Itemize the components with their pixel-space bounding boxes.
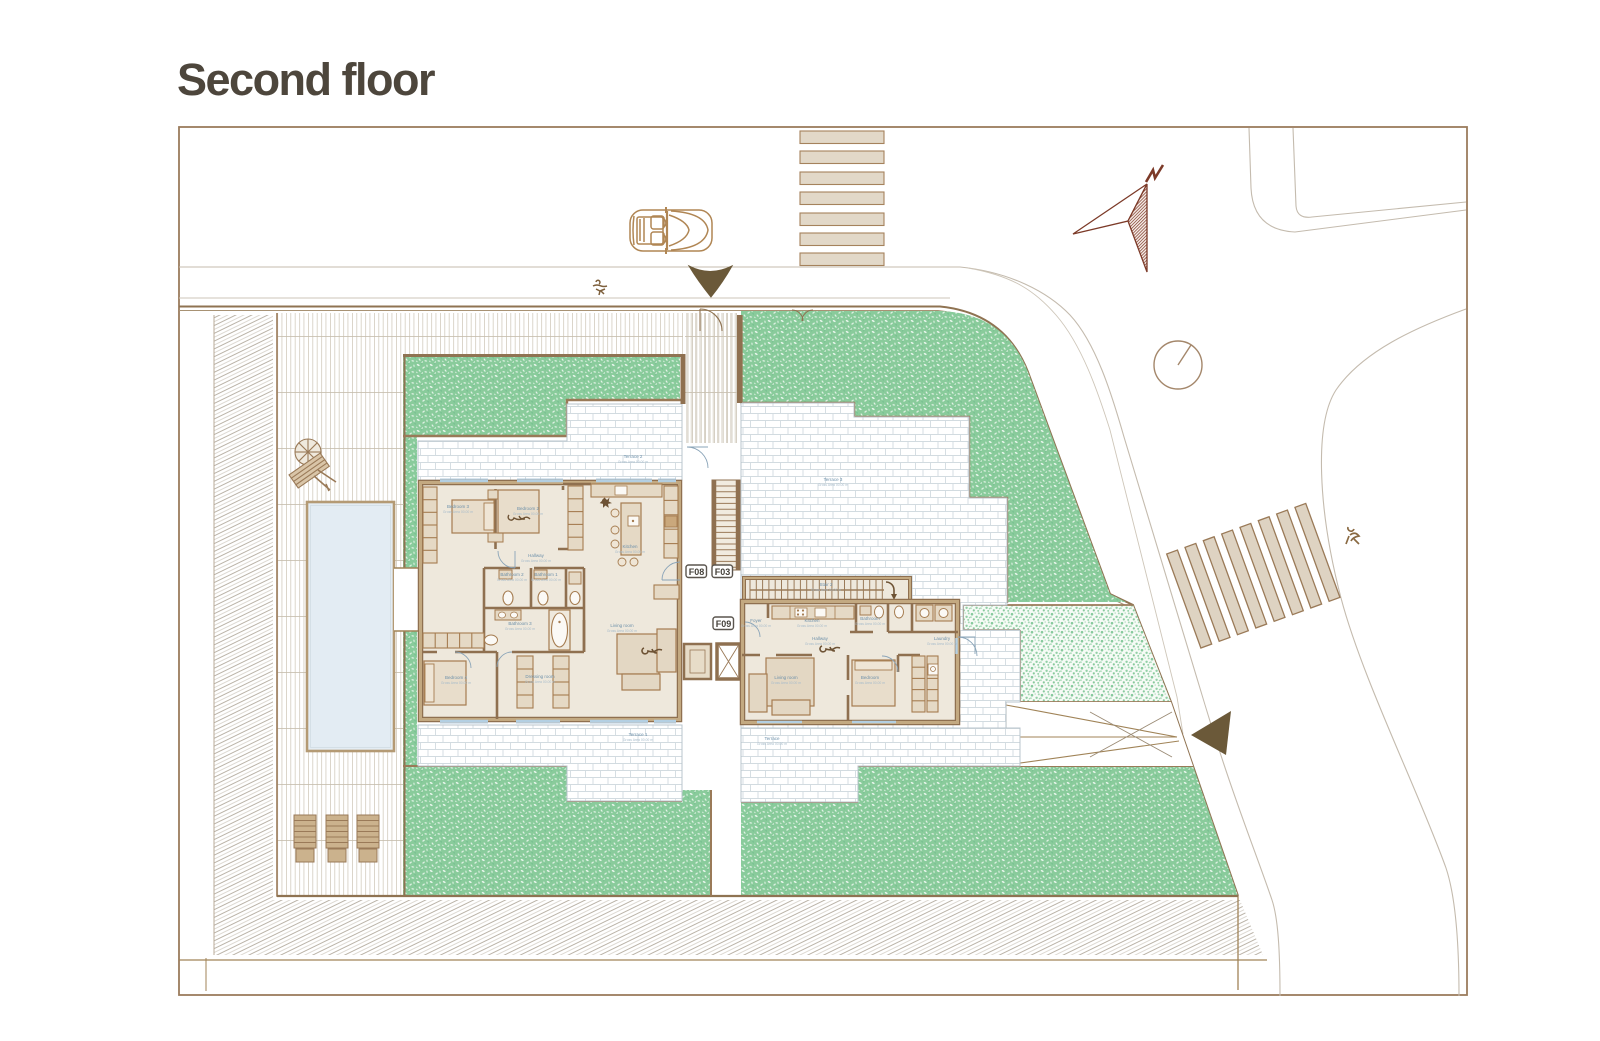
svg-text:Gross Area 00.00 m: Gross Area 00.00 m [811,588,841,592]
svg-text:Bedroom 2: Bedroom 2 [517,506,540,511]
svg-text:Gross Area 00.00 m: Gross Area 00.00 m [855,681,885,685]
svg-text:Laundry: Laundry [934,636,951,641]
svg-text:Gross Area 00.00 m: Gross Area 00.00 m [741,624,771,628]
svg-text:Gross Area 00.00 m: Gross Area 00.00 m [531,578,561,582]
svg-text:Terrace 1: Terrace 1 [629,732,648,737]
svg-text:Gross Area 00.00 m: Gross Area 00.00 m [615,550,645,554]
svg-text:Bedroom 3: Bedroom 3 [447,504,470,509]
svg-text:Living room: Living room [774,675,798,680]
svg-text:Bedroom: Bedroom [861,675,880,680]
svg-text:Bathroom 3: Bathroom 3 [508,621,532,626]
svg-text:Gross Area 00.00 m: Gross Area 00.00 m [818,483,848,487]
svg-text:Gross Area 00.00 m: Gross Area 00.00 m [513,512,543,516]
svg-text:Terrace 2: Terrace 2 [624,454,643,459]
svg-text:Gross Area 00.00 m: Gross Area 00.00 m [927,642,957,646]
svg-text:Dressing room: Dressing room [525,674,555,679]
svg-text:F03: F03 [715,567,731,577]
svg-text:Terrace: Terrace [764,736,780,741]
svg-text:Gross Area 00.00 m: Gross Area 00.00 m [505,627,535,631]
svg-text:Hallway: Hallway [528,553,545,558]
svg-text:Stair 2: Stair 2 [819,582,833,587]
svg-text:Terrace 3: Terrace 3 [824,477,843,482]
svg-text:Gross Area 00.00 m: Gross Area 00.00 m [497,578,527,582]
svg-text:Gross Area 00.00 m: Gross Area 00.00 m [757,742,787,746]
svg-text:Bathroom 2: Bathroom 2 [500,572,524,577]
svg-text:Gross Area 00.00 m: Gross Area 00.00 m [443,510,473,514]
svg-text:Gross Area 00.00 m: Gross Area 00.00 m [618,460,648,464]
svg-text:Bathroom: Bathroom [860,616,880,621]
svg-text:Gross Area 00.00 m: Gross Area 00.00 m [521,559,551,563]
svg-text:Gross Area 00.00 m: Gross Area 00.00 m [805,642,835,646]
svg-text:Gross Area 00.00 m: Gross Area 00.00 m [771,681,801,685]
svg-text:Gross Area 00.00 m: Gross Area 00.00 m [525,680,555,684]
svg-text:Foyer: Foyer [750,618,762,623]
svg-text:F09: F09 [716,619,732,629]
svg-text:Hallway: Hallway [812,636,829,641]
svg-text:Living room: Living room [610,623,634,628]
svg-text:Kitchen: Kitchen [622,544,638,549]
svg-text:Gross Area 00.00 m: Gross Area 00.00 m [797,624,827,628]
svg-text:F08: F08 [689,567,705,577]
svg-text:Gross Area 00.00 m: Gross Area 00.00 m [623,738,653,742]
svg-text:Bedroom 4: Bedroom 4 [445,675,468,680]
svg-text:Bathroom 1: Bathroom 1 [534,572,558,577]
svg-text:Gross Area 00.00 m: Gross Area 00.00 m [855,622,885,626]
svg-text:Kitchen: Kitchen [804,618,820,623]
svg-text:Gross Area 00.00 m: Gross Area 00.00 m [441,681,471,685]
svg-text:Gross Area 00.00 m: Gross Area 00.00 m [607,629,637,633]
